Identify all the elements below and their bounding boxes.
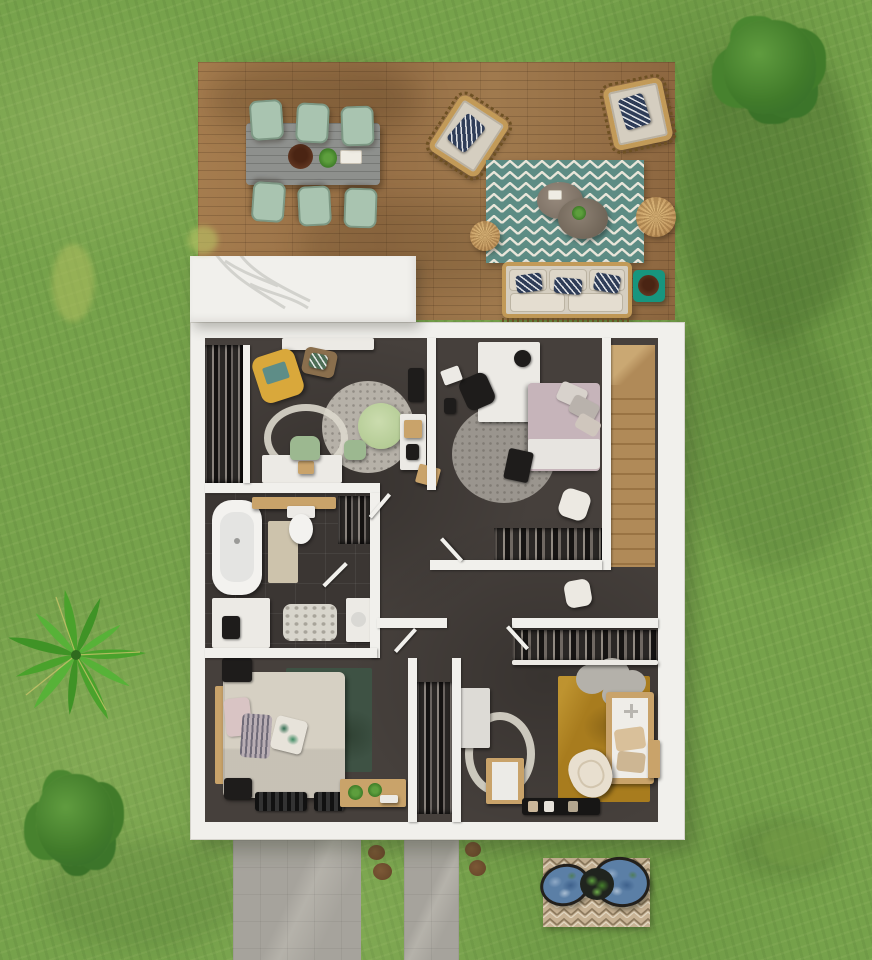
crib-pillow-2: [616, 751, 646, 774]
bedroom3-nightstand-top: [222, 658, 252, 682]
hall-white-pouf: [563, 578, 593, 609]
shelf-basket: [404, 420, 422, 438]
crib-pillow-1: [614, 726, 647, 752]
rocking-chair-seat: [574, 756, 609, 792]
nursery-cloud-rug: [576, 664, 608, 694]
sofa-pillow-1: [515, 272, 543, 293]
office-wall-shelf: [282, 338, 374, 350]
sink-bowl: [351, 612, 366, 627]
hall-closet: [417, 682, 453, 814]
table-tray: [340, 150, 362, 164]
wall-bedroom3-right: [408, 658, 417, 822]
bedroom2-bed: [528, 383, 600, 471]
pouf-pillow: [308, 352, 329, 370]
bedroom2-books: [444, 398, 456, 414]
wall-office-bedroom: [427, 338, 436, 490]
shoes-3: [568, 801, 578, 812]
dining-chair-3: [340, 105, 374, 146]
branch-shadow: [190, 256, 416, 322]
bathroom-sink: [346, 598, 371, 642]
office-desk-chair: [290, 436, 320, 460]
staircase-winder: [611, 345, 655, 385]
bathtub-drain: [234, 538, 240, 544]
wall-office-bath: [205, 483, 380, 493]
nursery-crib: [606, 692, 654, 784]
fern-shadow-bottom-right: [760, 826, 830, 866]
sofa-seat-cushion-1: [510, 293, 565, 312]
nursery-dresser: [486, 758, 524, 804]
bedroom3-desk: [340, 779, 406, 807]
office-green-stool: [344, 440, 366, 460]
side-table-bowl: [638, 275, 659, 296]
walkway-right: [404, 840, 459, 960]
sofa-pillow-2: [553, 277, 582, 295]
office-wardrobe: [205, 345, 243, 483]
table-bowl: [288, 144, 313, 169]
wall-closet-right: [452, 658, 461, 822]
wall-bath-bedroom3: [205, 648, 377, 658]
armchair-pillow-1: [446, 112, 486, 153]
desk-plant-1: [348, 785, 363, 800]
nursery-cabinet: [460, 688, 490, 748]
bush-bottom-left: [36, 774, 114, 866]
grass-shadow-patch: [690, 330, 860, 570]
bedroom2-open-wardrobe: [494, 528, 602, 562]
floorplan-render: [0, 0, 872, 960]
grass-tuft-left: [52, 244, 94, 322]
bed3-pillow-2: [240, 713, 273, 759]
vanity-bin: [222, 616, 240, 639]
office-side-shelf: [400, 414, 426, 470]
toilet: [287, 506, 315, 546]
wall-stairwell: [602, 338, 611, 570]
coffee-table-flowers: [572, 206, 586, 220]
dining-chair-1: [249, 99, 285, 141]
desk-plant-pot: [514, 350, 531, 367]
stepping-stone-1: [368, 845, 385, 860]
wall-office-wardrobe: [243, 345, 250, 483]
stepping-stone-4: [469, 860, 486, 876]
sofa-side-table: [633, 270, 665, 302]
crib-mobile-cross: [624, 704, 638, 718]
porch-roof: [190, 256, 416, 322]
wall-bedroom2-bottom: [430, 560, 602, 570]
bathtub: [212, 500, 262, 595]
dining-chair-4: [251, 181, 287, 223]
tree-top-right: [724, 20, 816, 114]
toilet-bowl: [289, 514, 313, 544]
shoes-1: [528, 801, 538, 812]
stepping-stone-2: [373, 863, 392, 880]
patio-planter: [580, 868, 614, 900]
bed2-pillow-3: [574, 412, 603, 438]
bathroom-wardrobe: [338, 496, 372, 544]
laptop-on-chair: [262, 361, 290, 385]
shoes-2: [544, 801, 554, 812]
dining-chair-5: [297, 185, 332, 227]
dresser-front: [492, 762, 518, 800]
crib-side-table: [648, 740, 660, 778]
stepping-stone-3: [465, 842, 481, 857]
bedroom3-nightstand-bottom: [224, 778, 252, 799]
palm-plant: [0, 575, 160, 735]
desk-keyboard: [380, 795, 398, 803]
grass-tuft-deck-corner: [188, 226, 218, 254]
walkway-left: [233, 840, 361, 960]
sofa-seat-cushion-2: [568, 293, 623, 312]
bathroom-vanity: [212, 598, 270, 648]
bedroom3-bench-rack-1: [255, 792, 307, 811]
table-plant: [319, 148, 337, 168]
bed2-folded-sheet: [528, 439, 600, 469]
nursery-top-closet: [512, 630, 658, 662]
dining-chair-2: [295, 102, 330, 144]
coffee-table-book: [548, 190, 562, 200]
stone-rug: [283, 604, 337, 641]
dining-chair-6: [343, 187, 377, 228]
closet-ledge: [512, 660, 658, 665]
jute-pouf-small: [470, 221, 500, 251]
bathtub-basin: [220, 512, 254, 582]
wall-hall-right: [512, 618, 658, 628]
desk-clipboard: [298, 461, 314, 474]
nursery-doormat: [522, 798, 600, 815]
outdoor-sofa: [502, 262, 632, 318]
wall-hall-left: [377, 618, 447, 628]
office-black-unit: [408, 368, 424, 402]
jute-pouf-large: [636, 197, 676, 237]
armchair-pillow-2: [617, 92, 652, 130]
shelf-speaker: [406, 444, 419, 460]
staircase-steps: [611, 385, 655, 567]
wicker-armchair-2: [602, 76, 674, 151]
